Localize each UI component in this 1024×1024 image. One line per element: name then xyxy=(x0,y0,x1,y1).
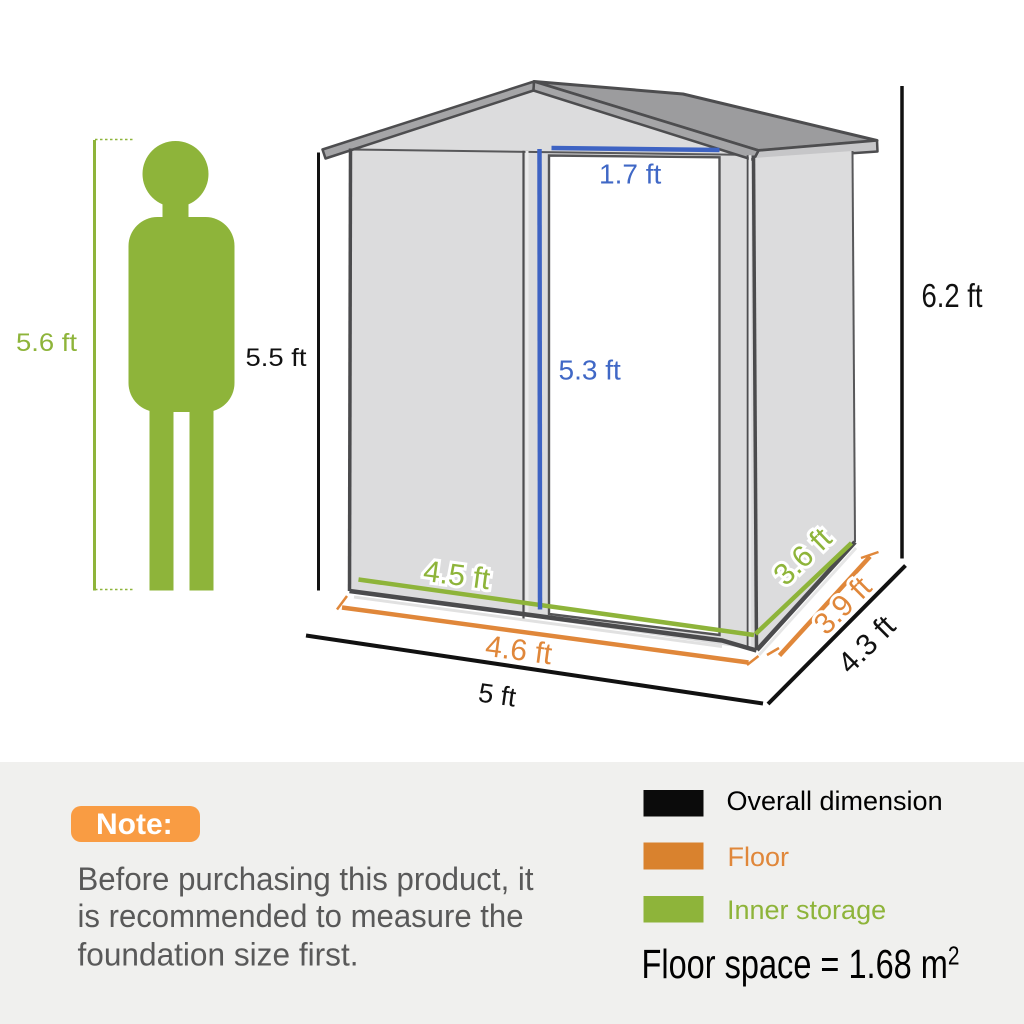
svg-text:5.3 ft: 5.3 ft xyxy=(559,355,621,386)
svg-text:Inner storage: Inner storage xyxy=(727,895,886,925)
svg-text:Floor: Floor xyxy=(728,842,790,872)
svg-text:1.7 ft: 1.7 ft xyxy=(599,159,661,190)
svg-text:6.2 ft: 6.2 ft xyxy=(922,277,983,314)
svg-text:5 ft: 5 ft xyxy=(477,678,519,713)
svg-text:foundation size first.: foundation size first. xyxy=(78,937,359,973)
svg-text:5.5 ft: 5.5 ft xyxy=(246,344,307,372)
svg-text:Note:: Note: xyxy=(96,808,173,841)
svg-text:Overall dimension: Overall dimension xyxy=(727,786,943,816)
svg-text:is recommended to measure the: is recommended to measure the xyxy=(78,898,524,934)
svg-text:Floor space = 1.68 m2: Floor space = 1.68 m2 xyxy=(642,941,960,988)
svg-text:Before purchasing this product: Before purchasing this product, it xyxy=(78,861,534,897)
svg-text:5.6 ft: 5.6 ft xyxy=(16,329,77,357)
